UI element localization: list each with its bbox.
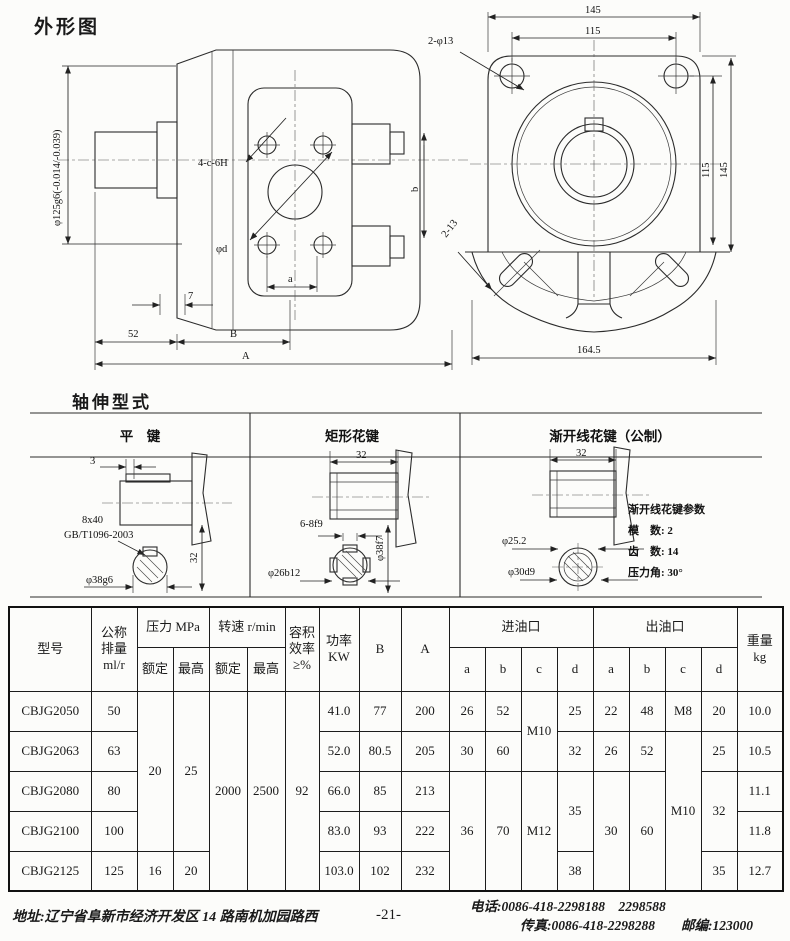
col-speed-max: 最高 xyxy=(247,647,285,691)
involute-spline-drawing: 32 φ25.2 φ30d9 渐开线花键参数 模 数: 2 齿 数: 14 压力… xyxy=(502,447,706,591)
dim-145-top: 145 xyxy=(585,5,601,16)
col-power: 功率 KW xyxy=(319,607,359,691)
cell-out-b: 60 xyxy=(629,771,665,891)
dim-spigot-dia: φ125g6(-0.014/-0.039) xyxy=(52,129,63,226)
cell-B: 85 xyxy=(359,771,401,811)
dim-32-involute: 32 xyxy=(576,448,587,459)
cell-kw: 103.0 xyxy=(319,851,359,891)
dim-key-shaft-dia: φ38g6 xyxy=(86,575,113,586)
spline-spec-label: 6-8f9 xyxy=(300,519,323,530)
col-outlet-b: b xyxy=(629,647,665,691)
col-inlet-b: b xyxy=(485,647,521,691)
cell-kw: 83.0 xyxy=(319,811,359,851)
col-pressure-max: 最高 xyxy=(173,647,209,691)
dim-164-5: 164.5 xyxy=(577,345,601,356)
cell-in-b: 60 xyxy=(485,731,521,771)
cell-out-a: 22 xyxy=(593,691,629,731)
cell-A: 205 xyxy=(401,731,449,771)
table-row: CBJG2050 50 20 25 2000 2500 92 41.0 77 2… xyxy=(9,691,783,731)
cell-out-d: 32 xyxy=(701,771,737,851)
involute-param-teeth: 齿 数: 14 xyxy=(628,544,679,558)
pump-side-view xyxy=(58,50,468,330)
cell-wt: 11.8 xyxy=(737,811,783,851)
cell-in-c: M12 xyxy=(521,771,557,891)
dim-involute-major-dia: φ30d9 xyxy=(508,567,535,578)
dim-B: B xyxy=(230,329,237,340)
cell-disp: 63 xyxy=(91,731,137,771)
cell-in-b: 70 xyxy=(485,771,521,891)
cell-kw: 41.0 xyxy=(319,691,359,731)
cell-p-rated: 20 xyxy=(137,691,173,851)
table-row: CBJG2063 63 52.0 80.5 205 30 60 32 26 52… xyxy=(9,731,783,771)
cell-in-a: 30 xyxy=(449,731,485,771)
footer-fax-number: 传真:0086-418-2298288 xyxy=(520,918,655,933)
dim-spline-major-dia: φ38f7 xyxy=(375,536,386,561)
col-inlet-a: a xyxy=(449,647,485,691)
cell-out-d: 25 xyxy=(701,731,737,771)
col-speed-rated: 额定 xyxy=(209,647,247,691)
cell-eff: 92 xyxy=(285,691,319,891)
col-outlet-c: c xyxy=(665,647,701,691)
outline-drawing: φ125g6(-0.014/-0.039) 4-c-6H φd a 7 b 52… xyxy=(0,0,790,395)
cell-A: 200 xyxy=(401,691,449,731)
footer-fax-postcode: 传真:0086-418-2298288邮编:123000 xyxy=(520,914,753,934)
dim-spline-minor-dia: φ26b12 xyxy=(268,568,300,579)
dim-involute-minor-dia: φ25.2 xyxy=(502,536,526,547)
cell-in-a: 26 xyxy=(449,691,485,731)
pump-side-view-dimensions: φ125g6(-0.014/-0.039) 4-c-6H φd a 7 b 52… xyxy=(52,66,452,370)
cell-model: CBJG2125 xyxy=(9,851,91,891)
dim-port-dia: φd xyxy=(216,244,228,255)
flat-key-header: 平 键 xyxy=(120,428,161,444)
dim-3: 3 xyxy=(90,456,95,467)
cell-in-d: 38 xyxy=(557,851,593,891)
table-header-row-1: 型号 公称 排量 ml/r 压力 MPa 转速 r/min 容积 效率 ≥% 功… xyxy=(9,607,783,647)
cell-in-d: 25 xyxy=(557,691,593,731)
cell-wt: 10.5 xyxy=(737,731,783,771)
flat-key-drawing: 3 8x40 GB/T1096-2003 φ38g6 32 xyxy=(64,453,232,593)
pump-front-view xyxy=(465,40,730,332)
footer-address: 地址:辽宁省阜新市经济开发区 14 路南机加园路西 xyxy=(12,906,318,926)
dim-bolt-holes: 4-c-6H xyxy=(198,158,228,169)
col-weight: 重量 kg xyxy=(737,607,783,691)
col-B: B xyxy=(359,607,401,691)
col-pressure-rated: 额定 xyxy=(137,647,173,691)
col-outlet: 出油口 xyxy=(593,607,737,647)
spec-table: 型号 公称 排量 ml/r 压力 MPa 转速 r/min 容积 效率 ≥% 功… xyxy=(8,606,784,892)
dim-115-side: 115 xyxy=(701,163,712,178)
dim-32-flat: 32 xyxy=(189,553,200,564)
cell-out-a: 30 xyxy=(593,771,629,891)
involute-spline-header: 渐开线花键（公制） xyxy=(549,428,671,444)
cell-p-max: 25 xyxy=(173,691,209,851)
cell-model: CBJG2050 xyxy=(9,691,91,731)
col-A: A xyxy=(401,607,449,691)
cell-B: 77 xyxy=(359,691,401,731)
cell-model: CBJG2063 xyxy=(9,731,91,771)
cell-model: CBJG2080 xyxy=(9,771,91,811)
key-size-label: 8x40 xyxy=(82,515,103,526)
cell-wt: 10.0 xyxy=(737,691,783,731)
cell-n-max: 2500 xyxy=(247,691,285,891)
involute-param-module: 模 数: 2 xyxy=(628,523,673,537)
dim-a: a xyxy=(288,274,293,285)
involute-param-angle: 压力角: 30° xyxy=(628,565,683,579)
cell-in-d: 32 xyxy=(557,731,593,771)
col-inlet-c: c xyxy=(521,647,557,691)
cell-wt: 12.7 xyxy=(737,851,783,891)
col-pressure: 压力 MPa xyxy=(137,607,209,647)
rect-spline-drawing: 32 6-8f9 φ26b12 φ38f7 xyxy=(268,450,432,593)
col-speed: 转速 r/min xyxy=(209,607,285,647)
dim-A: A xyxy=(242,351,250,362)
page-number: -21- xyxy=(376,907,401,924)
dim-52: 52 xyxy=(128,329,139,340)
rect-spline-header: 矩形花键 xyxy=(325,428,379,444)
col-inlet: 进油口 xyxy=(449,607,593,647)
cell-A: 232 xyxy=(401,851,449,891)
cell-kw: 52.0 xyxy=(319,731,359,771)
footer-postcode: 邮编:123000 xyxy=(681,918,753,933)
dim-b: b xyxy=(410,187,421,192)
cell-B: 93 xyxy=(359,811,401,851)
cell-in-b: 52 xyxy=(485,691,521,731)
cell-out-c: M8 xyxy=(665,691,701,731)
cell-n-rated: 2000 xyxy=(209,691,247,891)
dim-115-top: 115 xyxy=(585,26,600,37)
cell-out-a: 26 xyxy=(593,731,629,771)
cell-B: 80.5 xyxy=(359,731,401,771)
cell-kw: 66.0 xyxy=(319,771,359,811)
dim-7: 7 xyxy=(188,291,193,302)
cell-out-b: 52 xyxy=(629,731,665,771)
key-standard-label: GB/T1096-2003 xyxy=(64,530,133,541)
cell-p-max: 20 xyxy=(173,851,209,891)
dim-145-side: 145 xyxy=(719,162,730,178)
col-outlet-a: a xyxy=(593,647,629,691)
col-inlet-d: d xyxy=(557,647,593,691)
cell-out-b: 48 xyxy=(629,691,665,731)
cell-A: 222 xyxy=(401,811,449,851)
cell-B: 102 xyxy=(359,851,401,891)
shaft-types-drawing: 平 键 矩形花键 渐开线花键（公制） 3 8x40 GB/T1096-2003 … xyxy=(0,395,790,600)
involute-params-title: 渐开线花键参数 xyxy=(628,502,706,516)
col-displacement: 公称 排量 ml/r xyxy=(91,607,137,691)
dim-slots: 2-13 xyxy=(440,218,461,240)
dim-flange-holes: 2-φ13 xyxy=(428,36,453,47)
cell-A: 213 xyxy=(401,771,449,811)
footer-phone: 电话:0086-418-2298188 2298588 xyxy=(470,895,666,915)
cell-disp: 125 xyxy=(91,851,137,891)
cell-model: CBJG2100 xyxy=(9,811,91,851)
cell-wt: 11.1 xyxy=(737,771,783,811)
col-efficiency: 容积 效率 ≥% xyxy=(285,607,319,691)
cell-in-c: M10 xyxy=(521,691,557,771)
cell-out-d: 20 xyxy=(701,691,737,731)
cell-disp: 100 xyxy=(91,811,137,851)
col-outlet-d: d xyxy=(701,647,737,691)
cell-out-c: M10 xyxy=(665,731,701,891)
cell-out-d: 35 xyxy=(701,851,737,891)
cell-disp: 80 xyxy=(91,771,137,811)
dim-32-rect: 32 xyxy=(356,450,367,461)
cell-disp: 50 xyxy=(91,691,137,731)
cell-in-a: 36 xyxy=(449,771,485,891)
cell-in-d: 35 xyxy=(557,771,593,851)
col-model: 型号 xyxy=(9,607,91,691)
cell-p-rated: 16 xyxy=(137,851,173,891)
